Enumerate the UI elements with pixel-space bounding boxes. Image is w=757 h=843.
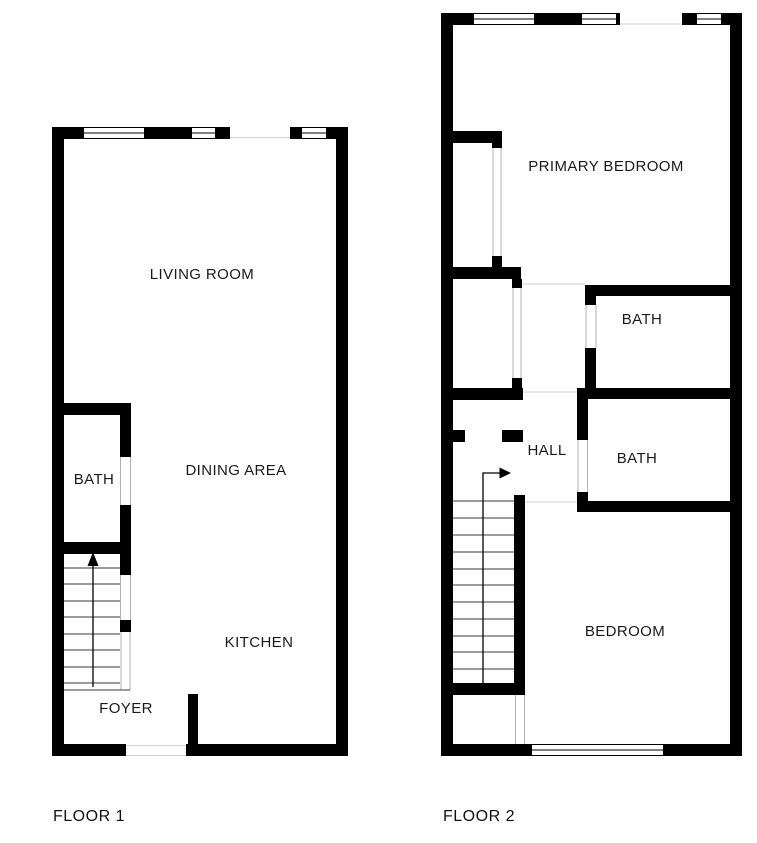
wall bbox=[577, 398, 588, 440]
wall bbox=[441, 388, 523, 400]
wall bbox=[219, 127, 230, 139]
wall bbox=[585, 295, 596, 305]
wall bbox=[52, 744, 126, 756]
wall bbox=[502, 430, 523, 442]
wall bbox=[441, 430, 465, 442]
room-label: BEDROOM bbox=[585, 623, 665, 640]
window-end-cap bbox=[215, 127, 219, 139]
stair-direction-arrow-head bbox=[88, 552, 99, 566]
wall bbox=[148, 127, 188, 139]
room-label: BATH bbox=[617, 450, 658, 467]
window-end-cap bbox=[188, 127, 192, 139]
wall bbox=[330, 127, 348, 139]
wall bbox=[52, 403, 129, 415]
window-end-cap bbox=[326, 127, 330, 139]
room-label: DINING AREA bbox=[185, 462, 286, 479]
room-label: KITCHEN bbox=[225, 634, 294, 651]
wall bbox=[120, 620, 131, 632]
floor-1-label: FLOOR 1 bbox=[53, 808, 125, 825]
room-label: PRIMARY BEDROOM bbox=[528, 158, 683, 175]
floor-2-plan: FLOOR 2 PRIMARY BEDROOMBATHHALLBATHBEDRO… bbox=[441, 13, 742, 825]
window-end-cap bbox=[528, 744, 532, 756]
wall bbox=[441, 267, 521, 279]
wall bbox=[120, 403, 131, 457]
wall bbox=[290, 127, 298, 139]
wall bbox=[52, 542, 129, 554]
window-end-cap bbox=[616, 13, 620, 25]
window-end-cap bbox=[721, 13, 725, 25]
wall bbox=[585, 348, 596, 388]
room-label: FOYER bbox=[99, 700, 153, 717]
wall bbox=[188, 694, 198, 756]
room-label: BATH bbox=[74, 471, 115, 488]
wall bbox=[453, 683, 525, 695]
page: FLOOR 1 LIVING ROOMBATHDINING AREAKITCHE… bbox=[0, 0, 757, 843]
window-end-cap bbox=[578, 13, 582, 25]
room-label: HALL bbox=[527, 442, 566, 459]
floor-1-plan: FLOOR 1 LIVING ROOMBATHDINING AREAKITCHE… bbox=[52, 127, 348, 825]
wall bbox=[725, 13, 742, 25]
window-end-cap bbox=[663, 744, 667, 756]
wall bbox=[492, 256, 502, 268]
wall bbox=[667, 744, 742, 756]
wall bbox=[730, 13, 742, 756]
wall bbox=[52, 127, 64, 756]
window-end-cap bbox=[470, 13, 474, 25]
window-end-cap bbox=[80, 127, 84, 139]
wall bbox=[441, 744, 528, 756]
window-end-cap bbox=[144, 127, 148, 139]
window-end-cap bbox=[534, 13, 538, 25]
floorplan-canvas: FLOOR 1 LIVING ROOMBATHDINING AREAKITCHE… bbox=[0, 0, 757, 843]
wall bbox=[585, 285, 742, 296]
wall bbox=[336, 127, 348, 756]
wall bbox=[682, 13, 693, 25]
room-label: BATH bbox=[622, 311, 663, 328]
wall bbox=[512, 279, 522, 288]
window-end-cap bbox=[693, 13, 697, 25]
stair-direction-arrow-head bbox=[500, 468, 512, 479]
wall bbox=[441, 13, 453, 756]
wall bbox=[577, 501, 742, 512]
wall bbox=[514, 495, 525, 695]
wall bbox=[492, 131, 502, 148]
wall bbox=[538, 13, 578, 25]
floor-2-label: FLOOR 2 bbox=[443, 808, 515, 825]
window-end-cap bbox=[298, 127, 302, 139]
room-label: LIVING ROOM bbox=[150, 266, 254, 283]
wall bbox=[441, 13, 470, 25]
wall bbox=[120, 542, 131, 575]
wall bbox=[52, 127, 80, 139]
wall bbox=[512, 378, 522, 389]
wall bbox=[577, 388, 742, 399]
wall bbox=[186, 744, 348, 756]
